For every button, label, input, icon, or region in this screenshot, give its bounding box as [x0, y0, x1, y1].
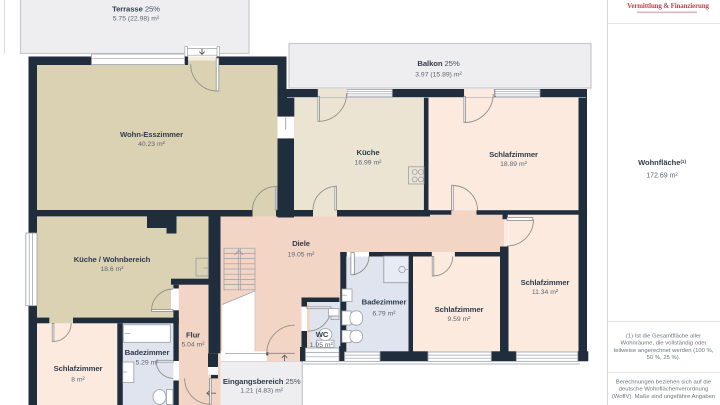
svg-text:teilweise angerechnet werden (: teilweise angerechnet werden (100 %, — [614, 348, 714, 354]
svg-text:18.6 m²: 18.6 m² — [100, 266, 124, 273]
svg-text:Schlafzimmer: Schlafzimmer — [54, 364, 103, 373]
svg-text:(WoflV). Maße sind ungefähre A: (WoflV). Maße sind ungefähre Angaben — [612, 394, 715, 400]
svg-text:Küche: Küche — [357, 148, 381, 157]
svg-text:Schlafzimmer: Schlafzimmer — [521, 278, 570, 287]
svg-text:WC: WC — [316, 330, 329, 339]
svg-text:3.97 (15.89) m²: 3.97 (15.89) m² — [415, 71, 462, 78]
svg-text:Balkon 25%: Balkon 25% — [417, 59, 459, 68]
svg-text:Terrasse 25%: Terrasse 25% — [112, 4, 160, 13]
svg-text:Badezimmer: Badezimmer — [362, 297, 407, 306]
svg-text:1.21 (4.83) m²: 1.21 (4.83) m² — [240, 388, 283, 395]
svg-text:5.29 m²: 5.29 m² — [135, 359, 159, 366]
svg-text:5.75 (22.98) m²: 5.75 (22.98) m² — [113, 16, 160, 23]
svg-text:172.69 m²: 172.69 m² — [646, 173, 678, 180]
svg-text:19.05 m²: 19.05 m² — [288, 251, 316, 258]
svg-text:(1) Ist die Gesamtfläche aller: (1) Ist die Gesamtfläche aller — [626, 334, 701, 340]
svg-text:5.04 m²: 5.04 m² — [181, 341, 205, 348]
svg-text:Badezimmer: Badezimmer — [125, 348, 170, 357]
svg-text:8 m²: 8 m² — [71, 377, 85, 384]
svg-text:11.34 m²: 11.34 m² — [532, 289, 559, 296]
svg-text:Berechnungen beziehen sich auf: Berechnungen beziehen sich auf die — [616, 380, 712, 386]
svg-text:Flur: Flur — [186, 330, 200, 339]
svg-text:deutsche Wohnflächenverordnung: deutsche Wohnflächenverordnung — [619, 387, 709, 393]
svg-text:Schlafzimmer: Schlafzimmer — [435, 305, 484, 314]
svg-text:Schlafzimmer: Schlafzimmer — [489, 150, 538, 159]
svg-text:Vermittlung & Finanzierung: Vermittlung & Finanzierung — [627, 3, 709, 10]
svg-text:1.95 m²: 1.95 m² — [310, 342, 334, 349]
svg-text:Küche / Wohnbereich: Küche / Wohnbereich — [74, 255, 151, 264]
svg-text:40.23 m²: 40.23 m² — [138, 141, 166, 148]
svg-text:6.79 m²: 6.79 m² — [372, 310, 396, 317]
svg-text:9.59 m²: 9.59 m² — [447, 316, 471, 323]
svg-text:Wohnräume, die vollständig ode: Wohnräume, die vollständig oder — [620, 341, 706, 347]
svg-text:Eingangsbereich 25%: Eingangsbereich 25% — [223, 377, 301, 386]
svg-text:Diele: Diele — [292, 239, 311, 248]
svg-text:18.89 m²: 18.89 m² — [500, 161, 528, 168]
svg-text:16.99 m²: 16.99 m² — [355, 160, 383, 167]
svg-text:Wohn-Esszimmer: Wohn-Esszimmer — [120, 130, 183, 139]
svg-text:Wohnfläche(1): Wohnfläche(1) — [638, 158, 686, 167]
svg-text:50 %, 25 %).: 50 %, 25 %). — [647, 355, 681, 361]
